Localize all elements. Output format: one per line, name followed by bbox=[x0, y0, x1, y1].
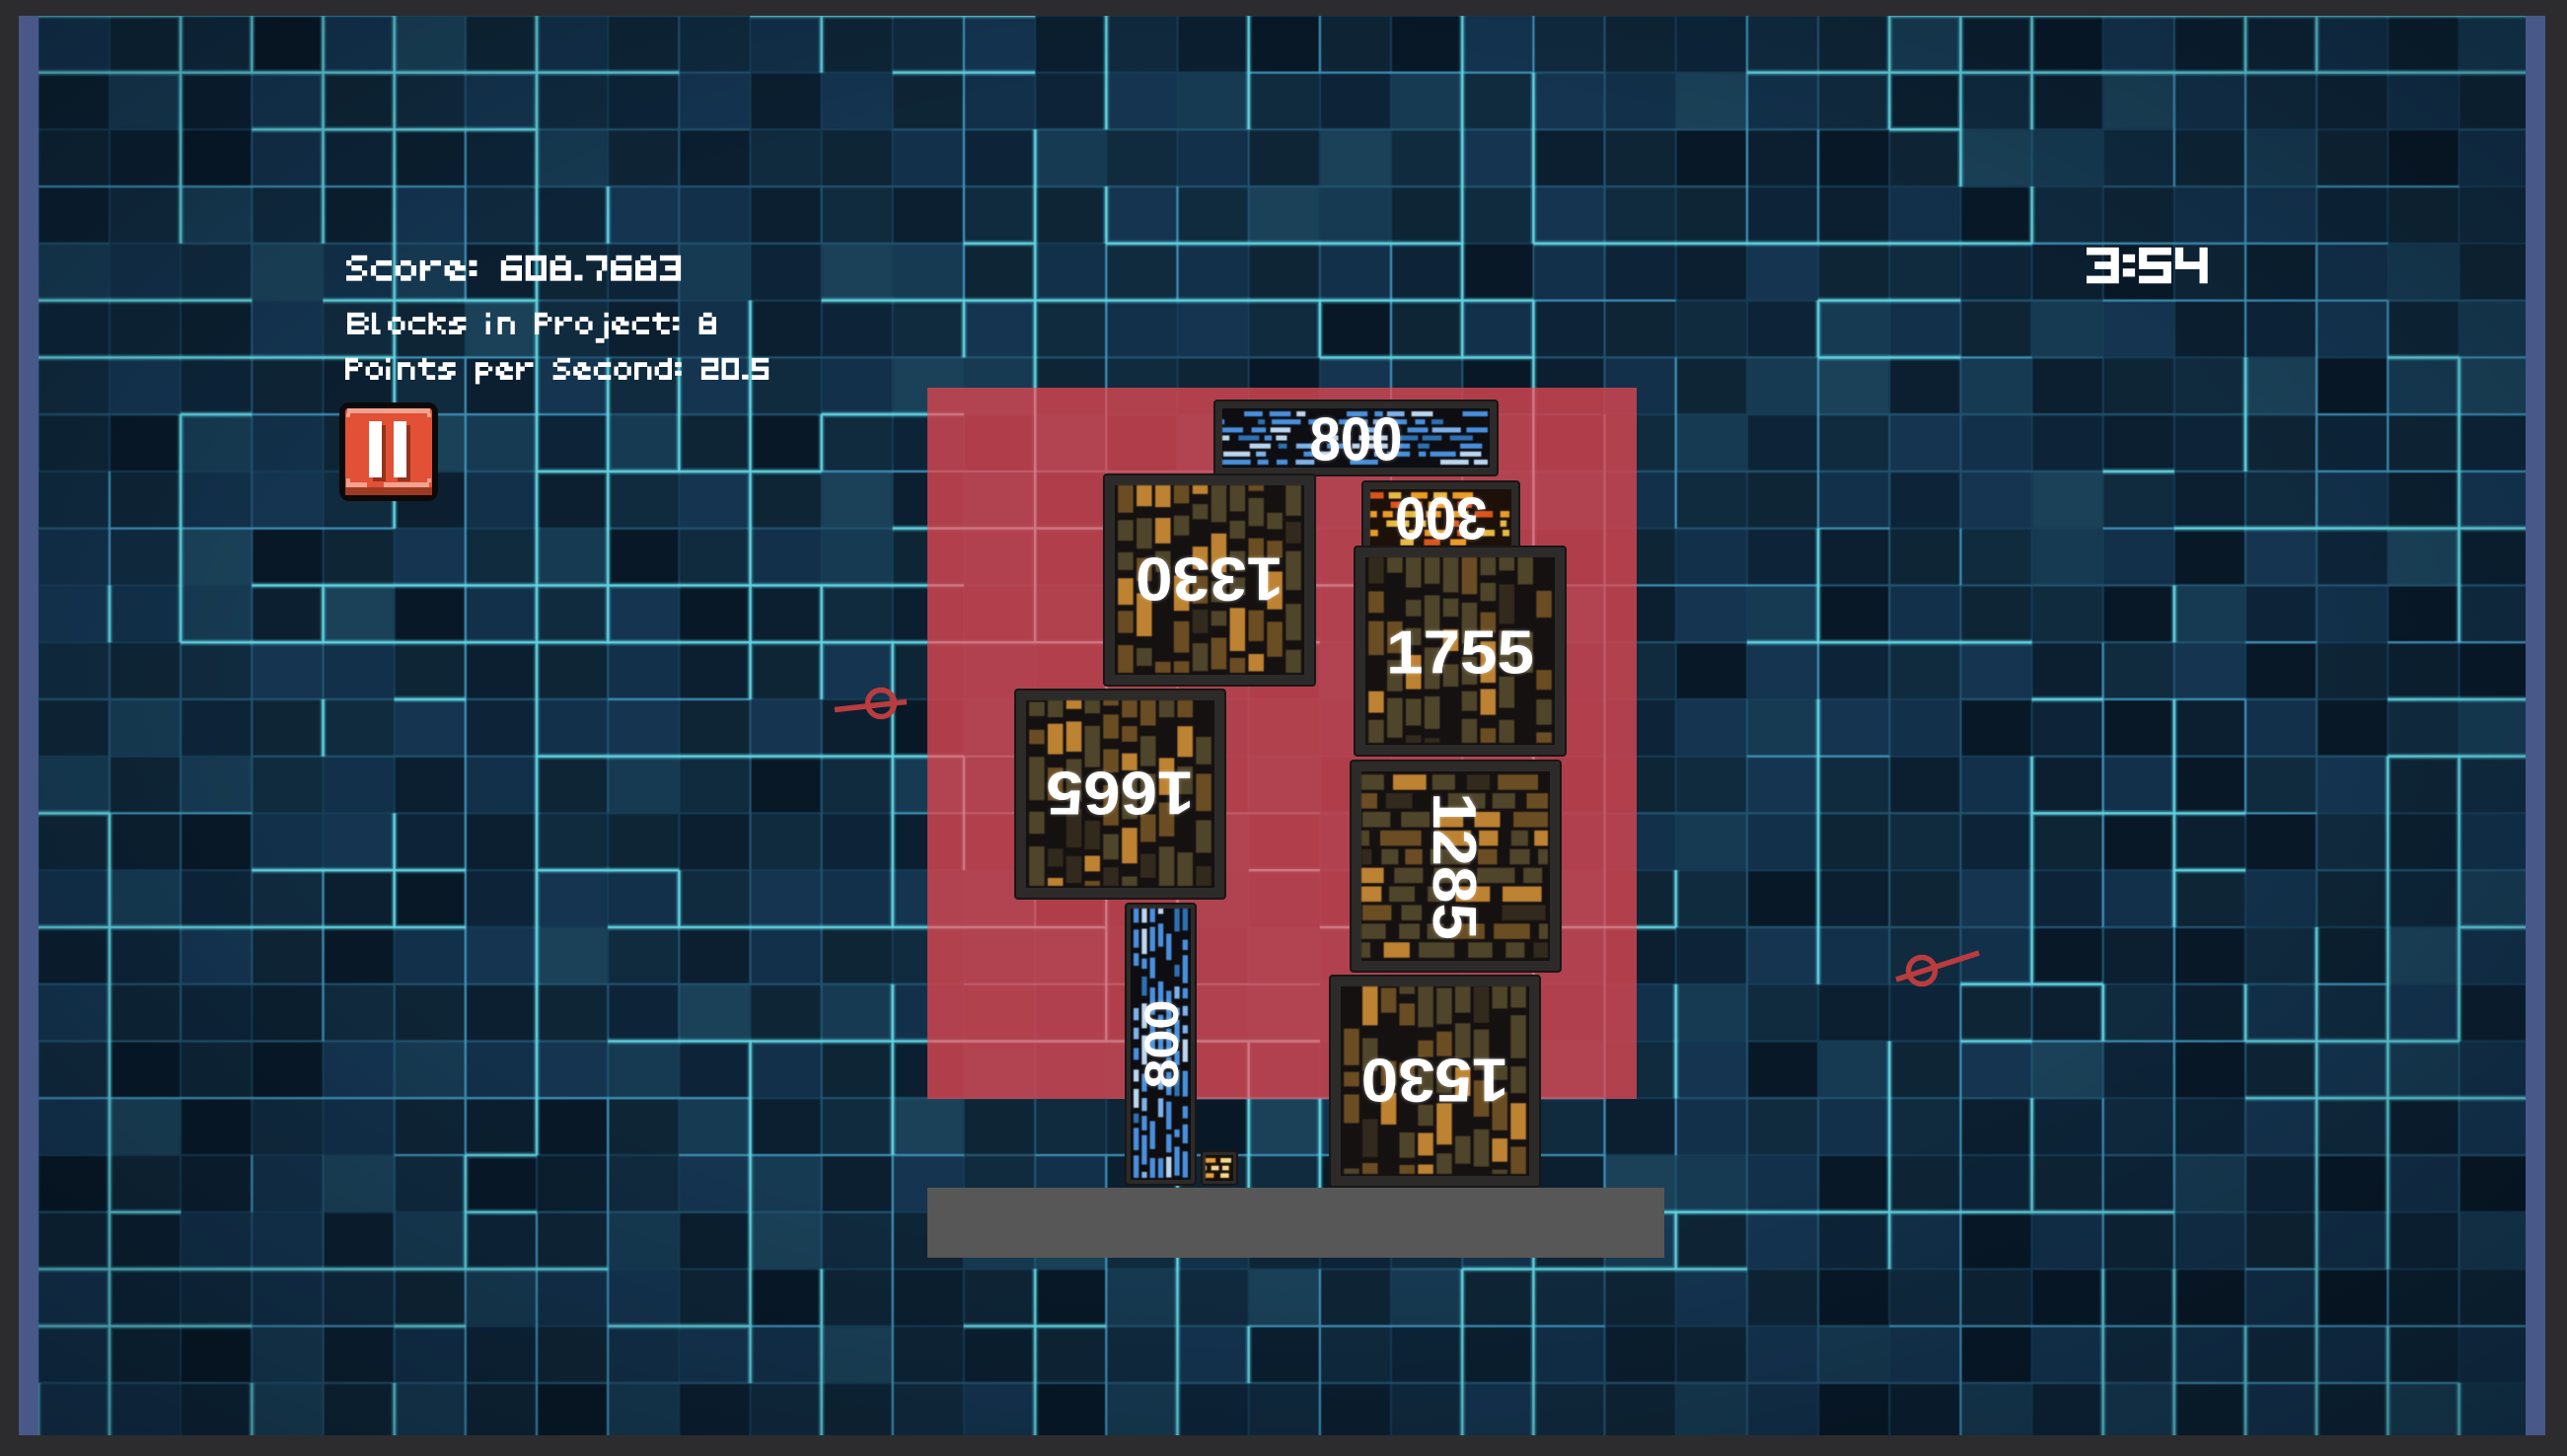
svg-text:300: 300 bbox=[1395, 484, 1487, 550]
svg-text:1285: 1285 bbox=[1420, 792, 1488, 940]
svg-text:800: 800 bbox=[1137, 1000, 1189, 1089]
svg-text:1755: 1755 bbox=[1386, 619, 1534, 687]
svg-text:800: 800 bbox=[1310, 405, 1403, 473]
svg-text:1530: 1530 bbox=[1361, 1046, 1509, 1114]
svg-text:1330: 1330 bbox=[1136, 545, 1283, 613]
svg-text:1665: 1665 bbox=[1047, 759, 1195, 827]
